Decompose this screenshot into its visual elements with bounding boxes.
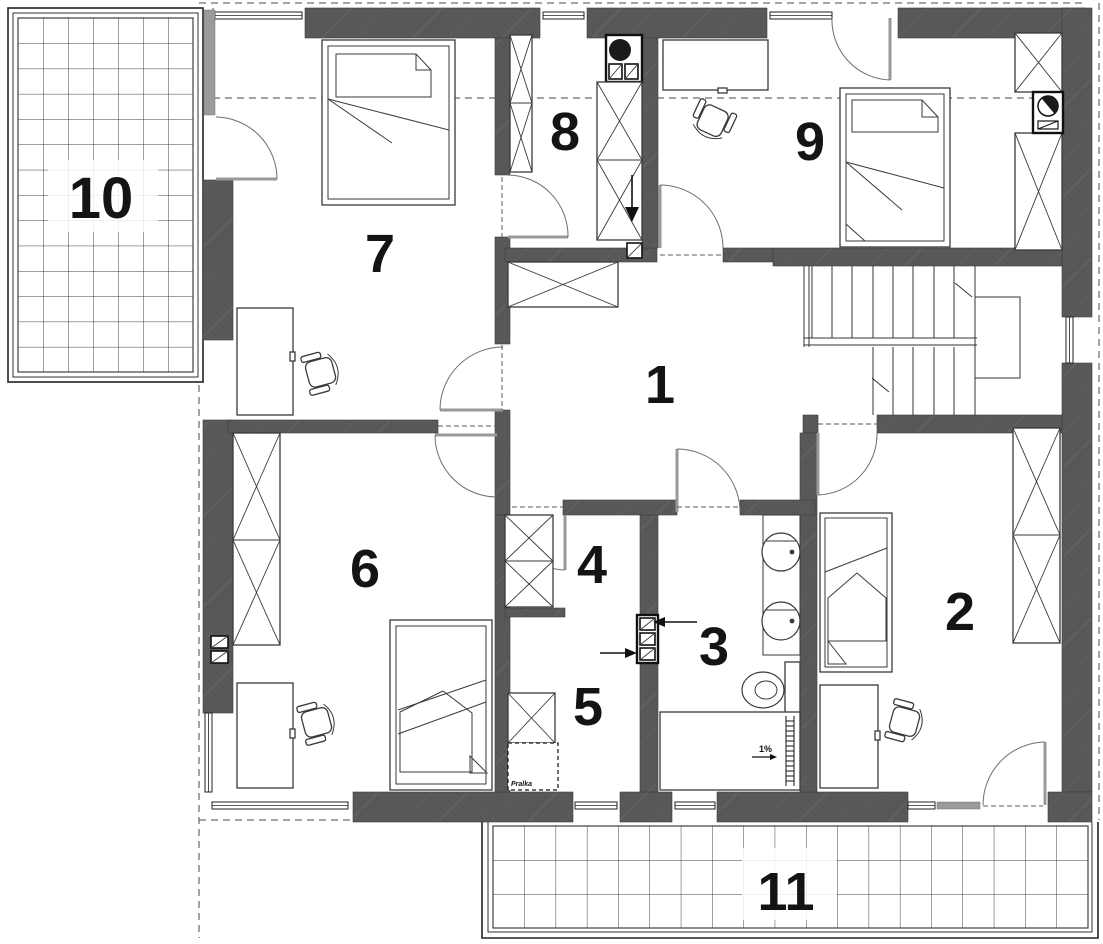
room-7-door [440, 347, 503, 410]
wardrobe-icon [510, 35, 532, 172]
vent-grille-icon [640, 648, 655, 660]
wall-segment [1062, 363, 1092, 792]
bed-icon [840, 88, 950, 247]
wall-segment [495, 410, 510, 515]
window [770, 12, 832, 19]
slope-label: 1% [759, 744, 772, 754]
wall-segment [773, 248, 1062, 266]
linear-drain-icon [786, 716, 794, 786]
vent-grille-icon [211, 636, 228, 648]
bed-icon [322, 40, 455, 205]
room-6-label: 6 [350, 539, 380, 599]
washer-space: Pralka [508, 743, 558, 790]
room-8: 8 [510, 35, 580, 172]
wall-segment [723, 248, 773, 262]
window [543, 12, 584, 19]
wall-segment [203, 420, 233, 713]
chair-icon [296, 699, 338, 746]
room-6: 6 [211, 433, 492, 790]
floor-plan-drawing: 10 11 [0, 0, 1103, 944]
desk-icon [237, 683, 295, 788]
window [675, 802, 715, 809]
chimney-flue-icon [609, 39, 631, 61]
toilet-icon [742, 662, 800, 718]
chair-icon [884, 698, 926, 745]
vent-grille-icon [211, 651, 228, 663]
room-8-label: 8 [550, 102, 580, 162]
wardrobe-icon [233, 433, 280, 645]
window [212, 802, 348, 809]
wall-segment [620, 792, 672, 822]
sink-icon [762, 602, 800, 640]
airflow-arrow-icon [653, 617, 697, 627]
vent-grille-icon [609, 64, 622, 79]
wardrobe-icon [508, 693, 555, 743]
wardrobe-icon [1013, 428, 1060, 643]
terrace-10-door [216, 117, 277, 179]
bed-icon [390, 620, 492, 790]
balcony-door-glazing [937, 802, 980, 809]
desk-icon [820, 685, 880, 788]
room-7-label: 7 [365, 224, 395, 284]
chair-icon [300, 349, 342, 396]
sink-icon [762, 533, 800, 571]
wall-segment [717, 792, 908, 822]
room-2: 2 [820, 428, 1060, 788]
room-2-door [818, 433, 877, 495]
wall-segment [495, 38, 510, 175]
wall-segment [228, 420, 438, 433]
stair-break-mark [872, 378, 889, 392]
wardrobe-icon [505, 515, 553, 607]
room-3-bathroom: 1% 3 [660, 515, 800, 790]
room-5: Pralka 5 [508, 677, 603, 790]
vent-grille-icon [627, 243, 642, 258]
terrace-door-glazing [204, 10, 215, 115]
room-4-label: 4 [577, 535, 607, 595]
wall-segment [505, 608, 565, 617]
wall-segment [740, 500, 815, 515]
staircase [804, 266, 1020, 415]
room-11-label: 11 [757, 862, 814, 922]
room-9: 9 [663, 33, 1063, 250]
wardrobe-icon [1015, 33, 1062, 250]
wall-segment [587, 8, 767, 38]
vent-grille-icon [625, 64, 638, 79]
sideboard-icon [508, 262, 618, 307]
washer-space-label: Pralka [511, 781, 532, 788]
window [908, 802, 935, 809]
balcony-door [983, 742, 1045, 805]
wall-segment [640, 515, 658, 617]
room-6-door [435, 435, 497, 497]
window [205, 713, 212, 792]
window [575, 802, 617, 809]
room-1-label: 1 [645, 355, 675, 415]
bathroom-door [677, 449, 740, 512]
room-9-door [660, 185, 723, 248]
room-2-label: 2 [945, 582, 975, 642]
room-5-label: 5 [573, 677, 603, 737]
utility-shaft [597, 35, 642, 258]
wall-segment [1048, 792, 1092, 822]
room-9-roof-door [832, 18, 890, 80]
wall-segment [642, 38, 658, 248]
desk-icon [237, 308, 295, 415]
floor-plan: 10 11 [0, 0, 1103, 944]
room-7: 7 [237, 40, 455, 415]
window [1066, 317, 1073, 363]
vent-grille-icon [640, 618, 655, 630]
tall-cupboard-icon [597, 82, 642, 240]
hallway-1: 1 [508, 262, 675, 415]
stair-break-mark [955, 283, 972, 297]
room-8-door [508, 175, 568, 237]
washing-machine-icon [1033, 92, 1063, 133]
bed-icon [820, 513, 892, 672]
airflow-arrow-icon [600, 648, 637, 658]
wall-segment [203, 180, 233, 340]
chair-icon [687, 98, 737, 145]
terrace-11: 11 [482, 822, 1098, 938]
terrace-10: 10 [8, 8, 203, 382]
room-10-label: 10 [69, 166, 134, 231]
desk-icon [663, 40, 768, 93]
wall-segment [353, 792, 573, 822]
window [215, 12, 302, 19]
vent-shaft [600, 615, 697, 663]
shower-tub-icon: 1% [660, 712, 800, 790]
wall-segment [563, 500, 677, 515]
room-4: 4 [505, 515, 607, 607]
wall-segment [305, 8, 540, 38]
room-3-label: 3 [699, 617, 729, 677]
wall-segment [1062, 8, 1092, 317]
wall-segment [800, 433, 817, 792]
room-9-label: 9 [795, 112, 825, 172]
vent-grille-icon [640, 633, 655, 645]
wall-segment [803, 415, 818, 433]
wall-segment [640, 662, 658, 792]
stair-landing [975, 297, 1020, 378]
